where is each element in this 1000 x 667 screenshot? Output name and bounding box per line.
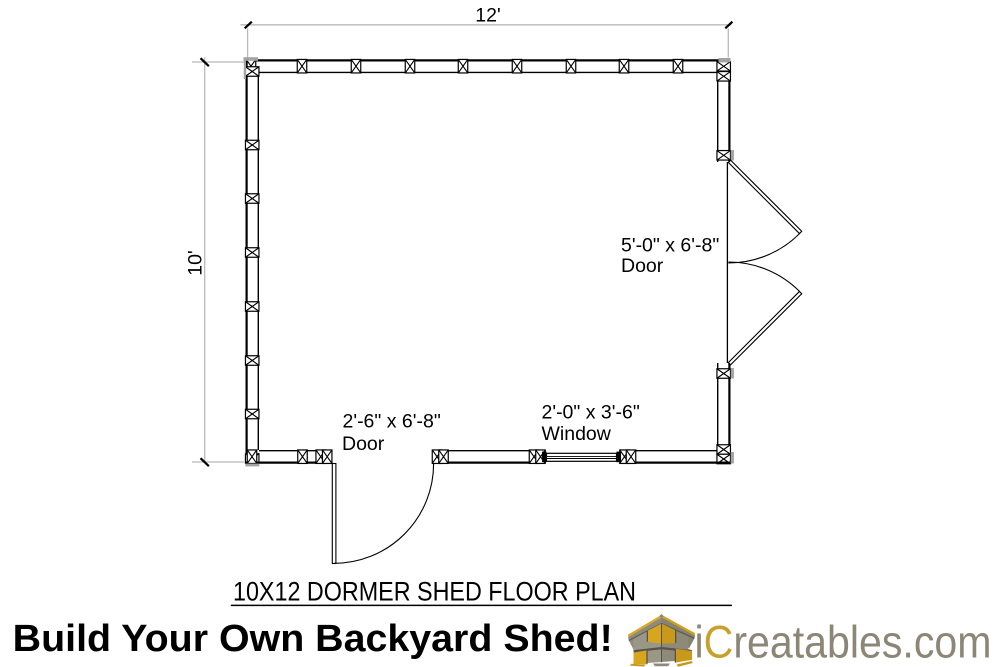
svg-text:2'-6" x 6'-8": 2'-6" x 6'-8": [343, 411, 441, 433]
svg-text:Door: Door: [621, 255, 664, 277]
svg-text:10X12 DORMER SHED FLOOR PLAN: 10X12 DORMER SHED FLOOR PLAN: [233, 577, 636, 607]
svg-text:Window: Window: [542, 423, 612, 445]
svg-text:iCreatables.com: iCreatables.com: [695, 617, 992, 667]
svg-text:5'-0" x 6'-8": 5'-0" x 6'-8": [621, 235, 719, 257]
svg-text:Build Your Own Backyard Shed!: Build Your Own Backyard Shed!: [13, 618, 613, 660]
svg-text:10': 10': [185, 250, 207, 275]
svg-text:Door: Door: [342, 433, 385, 455]
svg-text:12': 12': [475, 5, 500, 27]
svg-text:2'-0" x 3'-6": 2'-0" x 3'-6": [542, 401, 640, 423]
